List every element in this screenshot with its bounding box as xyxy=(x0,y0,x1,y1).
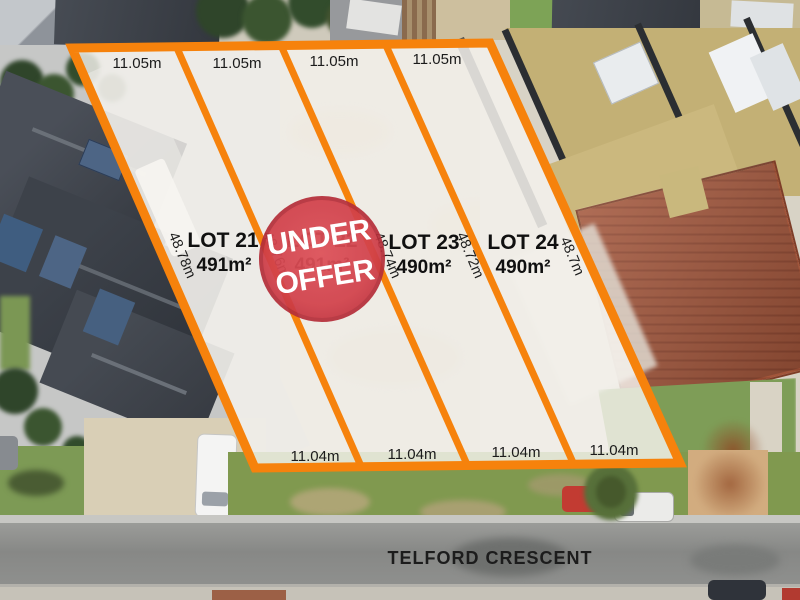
lot-21-area: 491m² xyxy=(197,255,252,276)
lot-23-bottom-width-label: 11.04m xyxy=(492,444,541,461)
lot-24-area: 490m² xyxy=(496,257,551,278)
lot-23-area: 490m² xyxy=(397,257,452,278)
lot-24-name: LOT 24 xyxy=(487,231,559,254)
lot-24-top-width-label: 11.05m xyxy=(413,51,462,68)
street-name-label: TELFORD CRESCENT xyxy=(388,548,593,568)
lot-22-bottom-width-label: 11.04m xyxy=(388,446,437,463)
lot-23-top-width-label: 11.05m xyxy=(310,53,359,70)
lot-21-top-width-label: 11.05m xyxy=(113,55,162,72)
lot-21-name: LOT 21 xyxy=(187,229,259,252)
site-plan-overlay: 11.05m 11.05m 11.05m 11.05m 11.04m 11.04… xyxy=(0,0,800,600)
real-estate-aerial-listing: 11.05m 11.05m 11.05m 11.05m 11.04m 11.04… xyxy=(0,0,800,600)
lot-22-top-width-label: 11.05m xyxy=(213,55,262,72)
lot-23-name: LOT 23 xyxy=(388,231,459,254)
lot-24-bottom-width-label: 11.04m xyxy=(590,442,639,459)
lot-21-bottom-width-label: 11.04m xyxy=(291,448,340,465)
